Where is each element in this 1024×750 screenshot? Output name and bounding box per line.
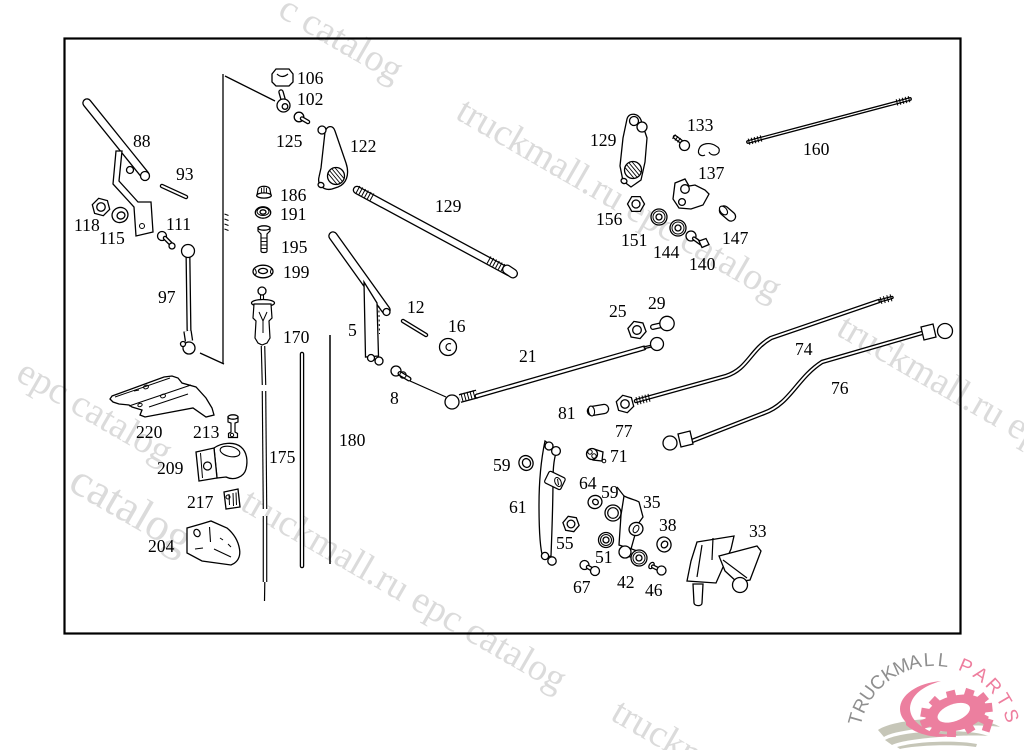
svg-text:59: 59 — [601, 482, 619, 502]
svg-text:170: 170 — [283, 327, 310, 347]
svg-text:35: 35 — [643, 492, 661, 512]
svg-text:220: 220 — [136, 422, 163, 442]
svg-text:38: 38 — [659, 515, 677, 535]
svg-text:156: 156 — [596, 209, 623, 229]
svg-text:71: 71 — [610, 446, 628, 466]
svg-text:76: 76 — [831, 378, 849, 398]
svg-text:74: 74 — [795, 339, 813, 359]
svg-text:64: 64 — [579, 473, 597, 493]
svg-text:33: 33 — [749, 521, 767, 541]
svg-text:42: 42 — [617, 572, 635, 592]
svg-text:97: 97 — [158, 287, 176, 307]
svg-text:55: 55 — [556, 533, 574, 553]
svg-text:199: 199 — [283, 262, 310, 282]
svg-text:L: L — [923, 650, 935, 672]
svg-text:88: 88 — [133, 131, 151, 151]
svg-text:144: 144 — [653, 242, 680, 262]
svg-text:160: 160 — [803, 139, 830, 159]
svg-text:151: 151 — [621, 230, 647, 250]
svg-text:8: 8 — [390, 388, 399, 408]
svg-text:195: 195 — [281, 237, 308, 257]
svg-text:133: 133 — [687, 115, 714, 135]
svg-text:122: 122 — [350, 136, 376, 156]
svg-text:51: 51 — [595, 547, 613, 567]
svg-text:61: 61 — [509, 497, 527, 517]
svg-text:59: 59 — [493, 455, 511, 475]
svg-text:147: 147 — [722, 228, 749, 248]
svg-text:125: 125 — [276, 131, 303, 151]
svg-text:180: 180 — [339, 430, 366, 450]
svg-text:81: 81 — [558, 403, 576, 423]
svg-text:93: 93 — [176, 164, 194, 184]
svg-text:137: 137 — [698, 163, 725, 183]
svg-text:77: 77 — [615, 421, 633, 441]
svg-text:67: 67 — [573, 577, 591, 597]
svg-text:140: 140 — [689, 254, 716, 274]
svg-text:5: 5 — [348, 320, 357, 340]
svg-text:102: 102 — [297, 89, 323, 109]
svg-text:118: 118 — [74, 215, 100, 235]
svg-text:16: 16 — [448, 316, 466, 336]
svg-text:46: 46 — [645, 580, 663, 600]
svg-text:12: 12 — [407, 297, 425, 317]
svg-text:111: 111 — [166, 214, 191, 234]
svg-text:175: 175 — [269, 447, 296, 467]
svg-text:186: 186 — [280, 185, 307, 205]
svg-text:21: 21 — [519, 346, 537, 366]
svg-text:191: 191 — [280, 204, 306, 224]
svg-text:29: 29 — [648, 293, 666, 313]
svg-text:213: 213 — [193, 422, 220, 442]
svg-text:115: 115 — [99, 228, 125, 248]
svg-text:129: 129 — [590, 130, 617, 150]
svg-text:129: 129 — [435, 196, 462, 216]
svg-text:106: 106 — [297, 68, 324, 88]
svg-text:204: 204 — [148, 536, 175, 556]
svg-text:25: 25 — [609, 301, 627, 321]
svg-text:209: 209 — [157, 458, 184, 478]
svg-text:217: 217 — [187, 492, 214, 512]
